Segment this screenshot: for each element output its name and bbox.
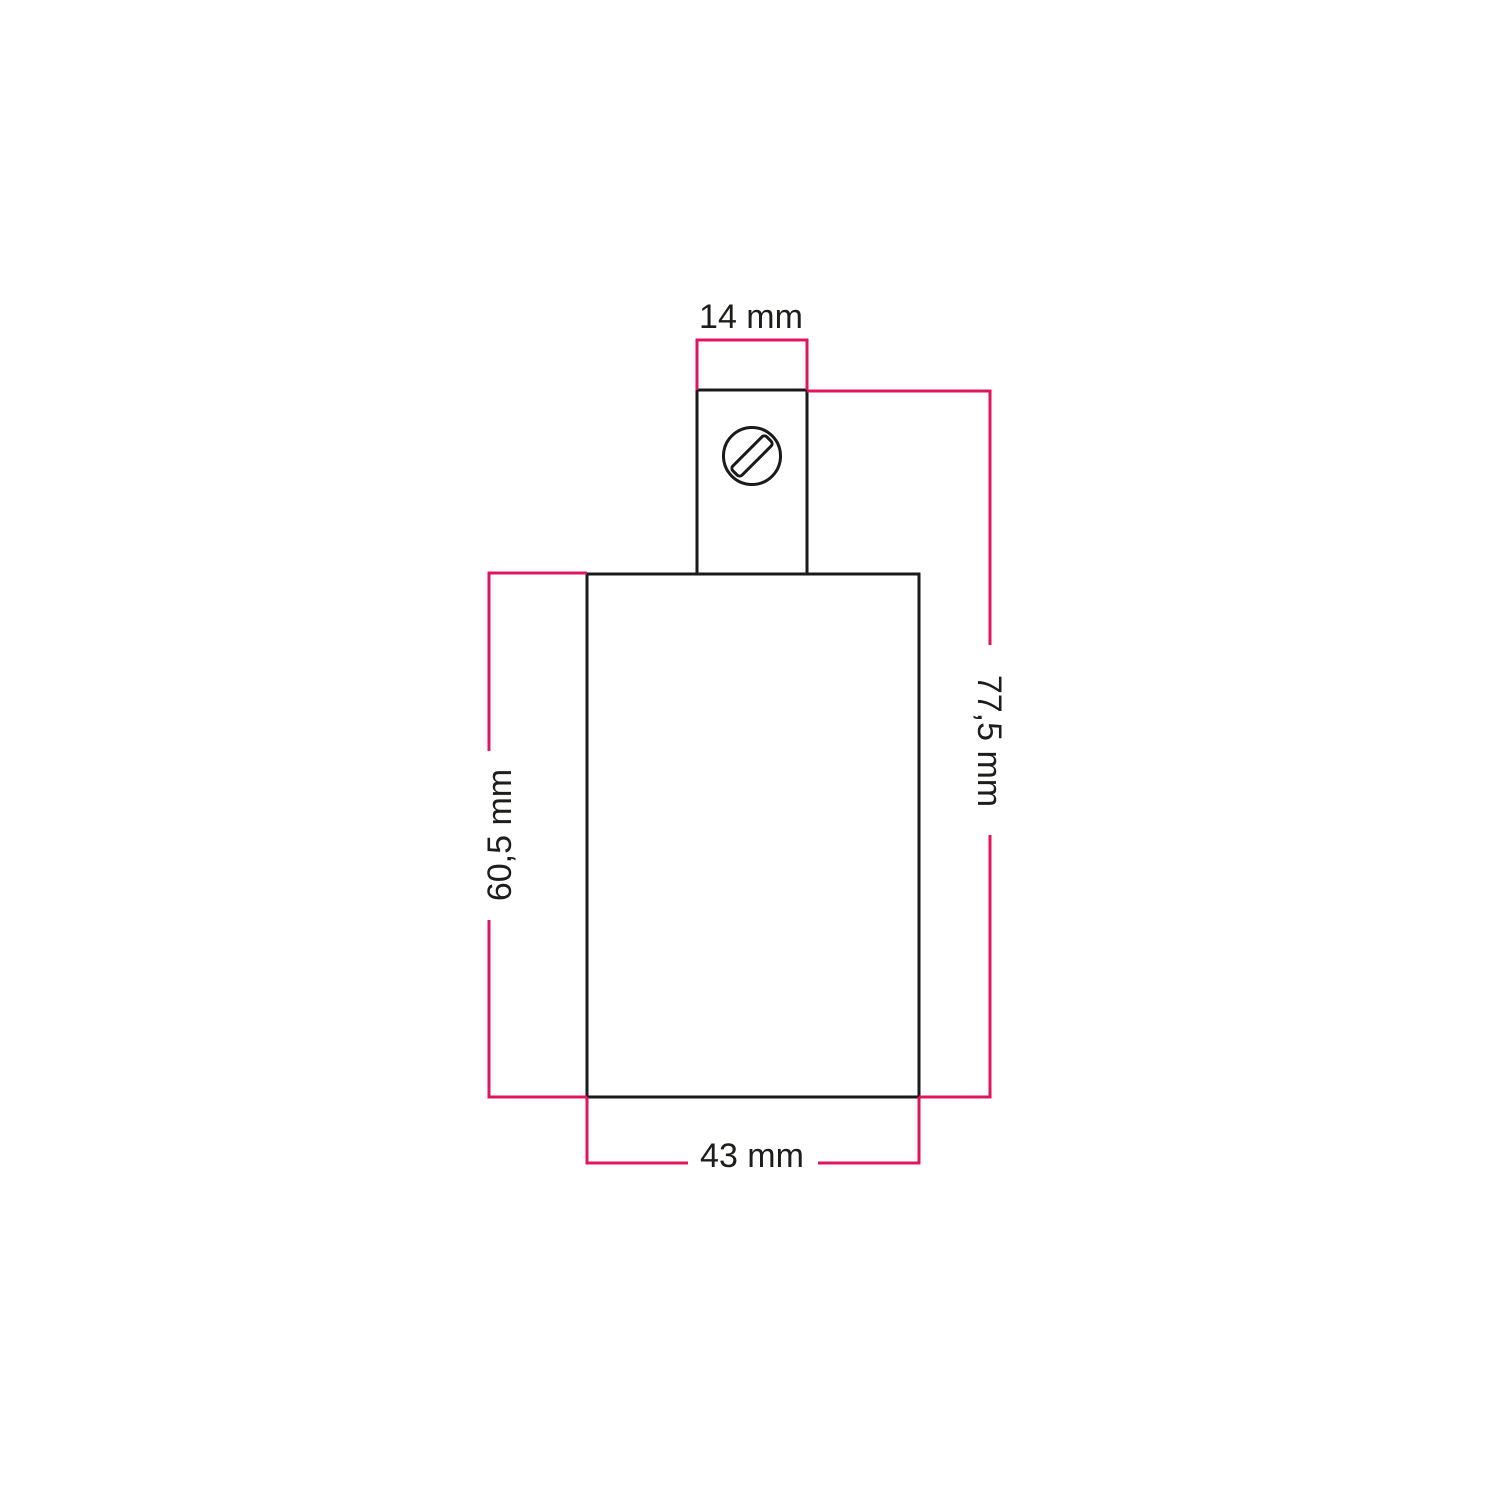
dimension-drawing-canvas: 14 mm 77,5 mm 60,5 mm 43 mm	[0, 0, 1500, 1500]
dim-line-total-height-upper	[807, 391, 990, 645]
dim-line-body-height-lower	[489, 920, 587, 1097]
screw-slot-icon	[730, 434, 773, 477]
dim-label-total-height: 77,5 mm	[972, 675, 1006, 807]
dim-line-body-width-right	[818, 1097, 919, 1163]
body-outline	[587, 574, 919, 1097]
dim-line-total-height-lower	[919, 835, 990, 1097]
dim-line-body-width-left	[587, 1097, 688, 1163]
screw-head-icon	[724, 428, 781, 485]
dimension-drawing-svg	[0, 0, 1500, 1500]
dim-label-body-width: 43 mm	[700, 1139, 804, 1173]
dim-label-top-width: 14 mm	[699, 300, 803, 334]
dim-label-body-height: 60,5 mm	[483, 769, 517, 901]
dim-line-top-width	[697, 340, 807, 390]
neck-outline	[697, 390, 807, 574]
dim-line-body-height-upper	[489, 573, 587, 751]
